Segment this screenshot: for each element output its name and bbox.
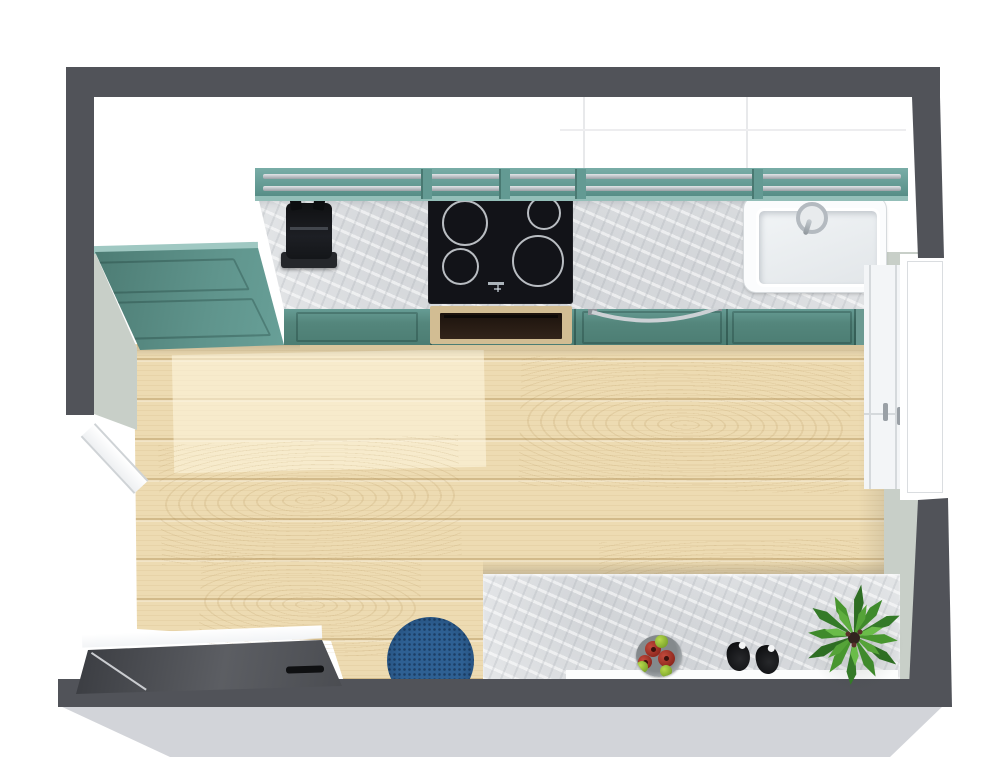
left-wall	[66, 67, 94, 415]
cabinet-seam	[574, 305, 576, 345]
door-handle	[286, 665, 324, 673]
cooktop-brand-mark	[488, 282, 504, 285]
sash-seam	[895, 265, 897, 489]
cooktop-control-mark	[497, 285, 499, 292]
plant-stem	[852, 643, 857, 648]
island-shadow-on-floor	[483, 560, 884, 574]
plant-stem	[846, 632, 851, 637]
floorplan-canvas	[0, 0, 1000, 764]
lime	[655, 635, 668, 648]
wall-cabinet-divider	[752, 169, 763, 199]
potted-plant[interactable]	[798, 580, 910, 692]
espresso-body	[286, 203, 332, 259]
wall-cabinet-divider	[421, 169, 432, 199]
door-edge-highlight	[91, 652, 147, 691]
burner-ring	[442, 248, 479, 285]
handle-bar	[592, 308, 718, 321]
induction-cooktop[interactable]	[428, 193, 573, 304]
sash-seam	[869, 265, 871, 489]
lime	[660, 665, 672, 677]
tall-cabinet-seam	[746, 97, 748, 168]
espresso-machine[interactable]	[281, 192, 337, 268]
foundation-slab	[58, 705, 944, 757]
espresso-trim	[290, 227, 328, 230]
wall-oven[interactable]	[430, 306, 572, 344]
floor-light-patch	[172, 349, 486, 474]
drawer-front-panel	[296, 312, 418, 342]
window-sash	[864, 265, 902, 489]
right-wall-upper	[910, 97, 946, 258]
top-wall	[66, 67, 940, 97]
burner-ring	[512, 235, 564, 287]
pantry-door-panel	[94, 258, 250, 294]
window-handle[interactable]	[883, 403, 888, 421]
wall-cabinet-divider	[499, 169, 510, 199]
burner-ring	[442, 200, 488, 246]
burner-ring	[527, 196, 561, 230]
tall-cabinet-edge-line	[560, 129, 906, 131]
cabinet-door-panel	[732, 311, 852, 344]
window-frame-inner-line	[907, 261, 943, 493]
lime	[636, 661, 648, 673]
oven-handle	[444, 315, 558, 318]
fruit-bowl[interactable]	[636, 635, 682, 677]
faucet-base	[796, 202, 828, 234]
wall-cabinet-divider	[575, 169, 586, 199]
window-frame[interactable]	[900, 254, 950, 500]
tall-cabinet-seam	[583, 97, 585, 168]
plant-stem	[858, 630, 863, 635]
